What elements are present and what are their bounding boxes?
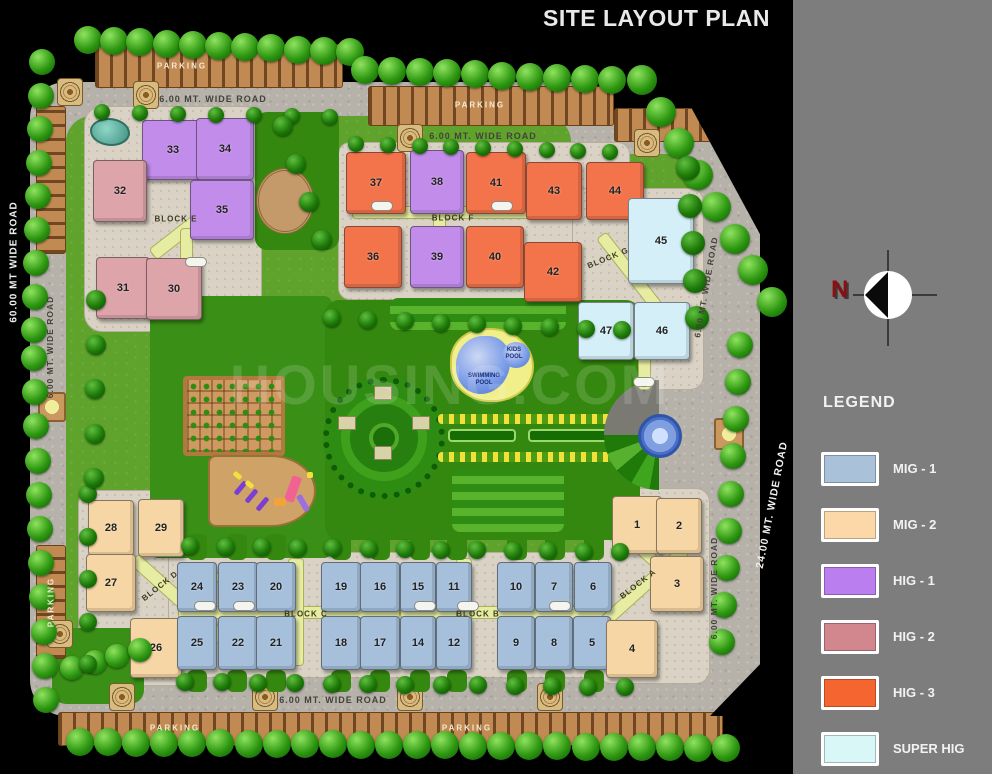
tree-icon	[27, 116, 53, 142]
building-16: 16	[360, 562, 400, 612]
tree-icon	[504, 542, 522, 560]
tree-icon	[577, 320, 595, 338]
tree-icon	[598, 66, 626, 94]
garden-seat-pad	[374, 446, 392, 460]
legend-item-mig1: MIG - 1	[793, 452, 992, 492]
tree-icon	[515, 732, 543, 760]
tree-icon	[85, 424, 105, 444]
tree-icon	[176, 673, 194, 691]
road-mandala-icon	[634, 129, 660, 157]
building-9: 9	[497, 616, 535, 670]
tree-icon	[727, 332, 753, 358]
tree-icon	[132, 105, 148, 121]
tree-icon	[84, 468, 104, 488]
road-label-right-lower: 6.00 MT. WIDE ROAD	[709, 537, 719, 640]
block-label-block-f: BLOCK F	[432, 214, 475, 223]
tree-icon	[323, 309, 341, 327]
building-43: 43	[526, 162, 582, 220]
walkway-marker	[549, 601, 571, 611]
tree-icon	[716, 518, 742, 544]
walkway-marker	[371, 201, 393, 211]
walkway-marker	[633, 377, 655, 387]
tree-icon	[431, 731, 459, 759]
building-18: 18	[321, 616, 361, 670]
tree-icon	[348, 136, 364, 152]
tree-icon	[723, 406, 749, 432]
tree-icon	[79, 528, 97, 546]
building-34: 34	[196, 118, 254, 180]
tree-icon	[579, 678, 597, 696]
tree-icon	[32, 653, 58, 679]
trellis-garden	[183, 376, 285, 456]
playground-area	[208, 455, 316, 527]
play-equipment-icon	[244, 488, 258, 503]
tree-icon	[150, 729, 178, 757]
play-equipment-icon	[296, 494, 310, 513]
building-46: 46	[634, 302, 690, 360]
tree-icon	[701, 192, 731, 222]
building-6: 6	[574, 562, 612, 612]
legend-swatch-hig1	[821, 564, 879, 598]
building-35: 35	[190, 180, 254, 240]
tree-icon	[720, 224, 750, 254]
play-equipment-icon	[232, 471, 242, 481]
tree-icon	[488, 62, 516, 90]
tree-icon	[312, 230, 332, 250]
hedge-east	[528, 429, 616, 442]
legend-heading: LEGEND	[823, 394, 896, 412]
legend-swatch-mig2	[821, 508, 879, 542]
parking-label-top-mid: PARKING	[455, 101, 505, 110]
tree-icon	[79, 570, 97, 588]
building-40: 40	[466, 226, 524, 288]
legend-label: HIG - 3	[893, 685, 935, 700]
road-label-60m: 60.00 MT WIDE ROAD	[9, 201, 20, 322]
tree-icon	[757, 287, 787, 317]
tree-icon	[396, 676, 414, 694]
tree-icon	[79, 655, 97, 673]
row-courtyard	[447, 534, 467, 560]
tree-icon	[170, 106, 186, 122]
building-39: 39	[410, 226, 464, 288]
fountain-pool	[638, 414, 682, 458]
building-36: 36	[344, 226, 402, 288]
tree-icon	[359, 311, 377, 329]
tree-icon	[412, 138, 428, 154]
tree-icon	[684, 734, 712, 762]
building-30: 30	[146, 258, 202, 320]
tree-icon	[676, 156, 700, 180]
tree-icon	[539, 142, 555, 158]
walkway-marker	[233, 601, 255, 611]
tree-icon	[432, 541, 450, 559]
tree-icon	[572, 733, 600, 761]
tree-icon	[600, 733, 628, 761]
tree-icon	[504, 317, 522, 335]
legend-label: HIG - 1	[893, 573, 935, 588]
block-label-block-c: BLOCK C	[284, 610, 327, 619]
building-3: 3	[650, 556, 704, 612]
compass-north-label: N	[831, 276, 848, 304]
tree-icon	[289, 539, 307, 557]
tree-icon	[178, 729, 206, 757]
kids-pool-label: KIDS POOL	[502, 347, 526, 361]
block-label-block-e: BLOCK E	[155, 215, 198, 224]
tree-icon	[602, 144, 618, 160]
tree-icon	[29, 49, 55, 75]
building-22: 22	[218, 616, 258, 670]
legend-swatch-hig3	[821, 676, 879, 710]
building-21: 21	[256, 616, 296, 670]
road-label-bottom: 6.00 MT. WIDE ROAD	[279, 695, 387, 705]
tree-icon	[725, 369, 751, 395]
play-equipment-icon	[274, 498, 286, 506]
walkway-marker	[194, 601, 216, 611]
tree-icon	[85, 379, 105, 399]
building-19: 19	[321, 562, 361, 612]
tree-icon	[628, 733, 656, 761]
tree-icon	[26, 482, 52, 508]
tree-icon	[403, 731, 431, 759]
garden-seat-pad	[412, 416, 430, 430]
tree-icon	[541, 318, 559, 336]
tree-icon	[487, 732, 515, 760]
tree-icon	[299, 192, 319, 212]
tree-icon	[86, 290, 106, 310]
tree-icon	[347, 731, 375, 759]
tree-icon	[738, 255, 768, 285]
tree-icon	[319, 730, 347, 758]
building-4: 4	[606, 620, 658, 678]
road-mandala-icon	[109, 683, 135, 711]
building-42: 42	[524, 242, 582, 302]
tree-icon	[33, 687, 59, 713]
legend-swatch-hig2	[821, 620, 879, 654]
legend-item-hig2: HIG - 2	[793, 620, 992, 660]
tree-icon	[217, 538, 235, 556]
road-label-top-mid: 6.00 MT. WIDE ROAD	[429, 131, 537, 141]
tree-icon	[459, 732, 487, 760]
tree-icon	[253, 538, 271, 556]
legend-item-hig1: HIG - 1	[793, 564, 992, 604]
legend-item-mig2: MIG - 2	[793, 508, 992, 548]
parking-label-bottom-1: PARKING	[150, 724, 200, 733]
pond	[90, 118, 130, 146]
tree-icon	[86, 335, 106, 355]
tree-icon	[23, 250, 49, 276]
tree-icon	[575, 543, 593, 561]
tree-icon	[181, 537, 199, 555]
building-14: 14	[400, 616, 436, 670]
tree-icon	[468, 315, 486, 333]
building-2: 2	[656, 498, 702, 554]
tree-icon	[74, 26, 102, 54]
legend-label: MIG - 1	[893, 461, 936, 476]
tree-icon	[506, 677, 524, 695]
tree-icon	[543, 677, 561, 695]
tree-icon	[516, 63, 544, 91]
tree-icon	[284, 36, 312, 64]
tree-icon	[396, 540, 414, 558]
legend-label: MIG - 2	[893, 517, 936, 532]
walkway-marker	[185, 257, 207, 267]
legend-label: HIG - 2	[893, 629, 935, 644]
tree-icon	[681, 231, 705, 255]
walkway-marker	[457, 601, 479, 611]
play-equipment-icon	[244, 480, 254, 490]
tree-icon	[611, 543, 629, 561]
tree-icon	[291, 730, 319, 758]
garden-seat-pad	[374, 386, 392, 400]
legend-swatch-shig	[821, 732, 879, 766]
building-10: 10	[497, 562, 535, 612]
tree-icon	[656, 733, 684, 761]
legend-swatch-mig1	[821, 452, 879, 486]
tree-icon	[235, 730, 263, 758]
tree-icon	[122, 729, 150, 757]
tree-icon	[322, 109, 338, 125]
tree-icon	[646, 97, 676, 127]
tree-icon	[712, 734, 740, 762]
tree-icon	[613, 321, 631, 339]
walkway-marker	[491, 201, 513, 211]
building-33: 33	[142, 120, 204, 180]
side-panel: N LEGEND MIG - 1MIG - 2HIG - 1HIG - 2HIG…	[793, 0, 992, 774]
building-25: 25	[177, 616, 217, 670]
tree-icon	[678, 194, 702, 218]
tree-icon	[263, 730, 291, 758]
parking-label-left: PARKING	[47, 577, 56, 627]
hedge-west	[448, 429, 516, 442]
tree-icon	[27, 516, 53, 542]
building-31: 31	[96, 257, 150, 319]
building-17: 17	[360, 616, 400, 670]
tree-icon	[310, 37, 338, 65]
tree-icon	[94, 104, 110, 120]
tree-icon	[433, 676, 451, 694]
tree-icon	[94, 728, 122, 756]
tree-icon	[153, 30, 181, 58]
tree-icon	[468, 541, 486, 559]
tree-icon	[360, 540, 378, 558]
tree-icon	[25, 448, 51, 474]
tree-icon	[273, 116, 293, 136]
tree-icon	[66, 728, 94, 756]
tree-icon	[28, 83, 54, 109]
legend-item-shig: SUPER HIG	[793, 732, 992, 772]
building-38: 38	[410, 150, 464, 214]
tree-icon	[286, 154, 306, 174]
parking-label-top-left: PARKING	[157, 62, 207, 71]
tree-icon	[396, 312, 414, 330]
tree-icon	[24, 217, 50, 243]
flower-border-south	[438, 452, 624, 462]
legend-label: SUPER HIG	[893, 741, 965, 756]
tree-icon	[21, 345, 47, 371]
tree-icon	[25, 183, 51, 209]
road-mandala-icon	[57, 78, 83, 106]
tree-icon	[375, 731, 403, 759]
garden-seat-pad	[338, 416, 356, 430]
play-equipment-icon	[255, 496, 269, 511]
road-label-top-left: 6.00 MT. WIDE ROAD	[159, 94, 267, 104]
page-title: SITE LAYOUT PLAN	[543, 5, 770, 32]
row-courtyard	[266, 670, 286, 692]
tree-icon	[543, 64, 571, 92]
tree-icon	[213, 673, 231, 691]
road-label-left: 6.00 MT. WIDE ROAD	[45, 296, 55, 399]
building-28: 28	[88, 500, 134, 556]
tree-icon	[380, 137, 396, 153]
site-plan: 333435323130BLOCK E373841434436394042BLO…	[0, 0, 793, 774]
tree-icon	[432, 314, 450, 332]
tree-icon	[21, 317, 47, 343]
tree-icon	[543, 732, 571, 760]
tree-icon	[26, 150, 52, 176]
walkway-marker	[414, 601, 436, 611]
parking-label-bottom-2: PARKING	[442, 724, 492, 733]
legend-item-hig3: HIG - 3	[793, 676, 992, 716]
tree-icon	[205, 32, 233, 60]
tree-icon	[351, 56, 379, 84]
site-layout-screenshot: 333435323130BLOCK E373841434436394042BLO…	[0, 0, 992, 774]
tree-icon	[378, 57, 406, 85]
swimming-pool-label: SWIMMING POOL	[465, 373, 503, 387]
tree-icon	[179, 31, 207, 59]
tree-icon	[79, 613, 97, 631]
tree-icon	[128, 638, 152, 662]
building-8: 8	[535, 616, 573, 670]
tree-icon	[206, 729, 234, 757]
lawn-striped-south	[452, 468, 564, 532]
building-32: 32	[93, 160, 147, 222]
tree-icon	[208, 107, 224, 123]
flower-border-north	[438, 414, 624, 424]
tree-icon	[571, 65, 599, 93]
tree-icon	[406, 58, 434, 86]
building-20: 20	[256, 562, 296, 612]
tree-icon	[507, 141, 523, 157]
tree-icon	[475, 140, 491, 156]
tree-icon	[616, 678, 634, 696]
tree-icon	[627, 65, 657, 95]
building-29: 29	[138, 499, 184, 557]
building-12: 12	[436, 616, 472, 670]
tree-icon	[718, 481, 744, 507]
play-equipment-icon	[307, 472, 313, 478]
tree-icon	[323, 675, 341, 693]
